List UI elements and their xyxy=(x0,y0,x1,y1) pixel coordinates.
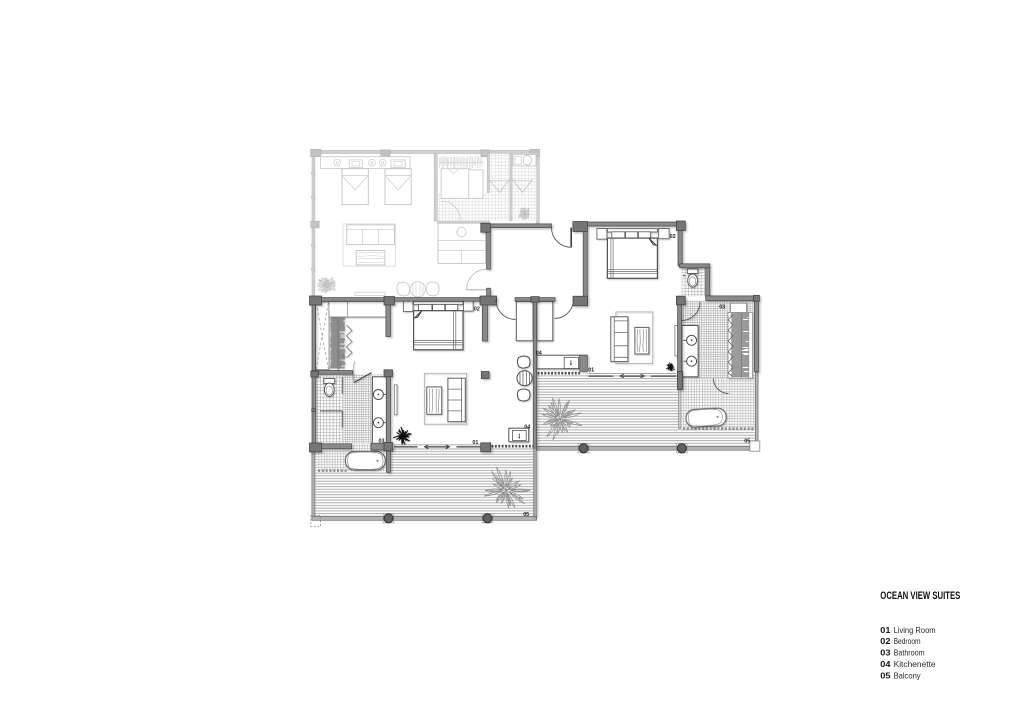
svg-text:OCEAN VIEW SUITES: OCEAN VIEW SUITES xyxy=(880,590,960,602)
svg-text:04: 04 xyxy=(880,659,890,669)
svg-text:01: 01 xyxy=(472,440,478,446)
svg-text:01: 01 xyxy=(588,368,594,374)
svg-text:02: 02 xyxy=(474,306,480,312)
svg-text:03: 03 xyxy=(880,648,890,658)
svg-text:Living Room: Living Room xyxy=(894,625,936,635)
svg-text:Bedroom: Bedroom xyxy=(894,636,921,646)
svg-text:02: 02 xyxy=(880,636,890,646)
svg-text:Bathroom: Bathroom xyxy=(894,648,925,658)
svg-text:03: 03 xyxy=(719,305,725,311)
svg-text:03: 03 xyxy=(379,438,385,444)
svg-text:01: 01 xyxy=(880,625,890,635)
svg-text:04: 04 xyxy=(524,424,530,430)
svg-text:Balcony: Balcony xyxy=(894,670,922,680)
svg-text:05: 05 xyxy=(744,438,750,444)
svg-text:02: 02 xyxy=(670,234,676,240)
svg-text:05: 05 xyxy=(523,512,529,518)
svg-text:04: 04 xyxy=(536,351,542,357)
svg-text:05: 05 xyxy=(880,670,890,680)
svg-text:Kitchenette: Kitchenette xyxy=(894,659,936,669)
